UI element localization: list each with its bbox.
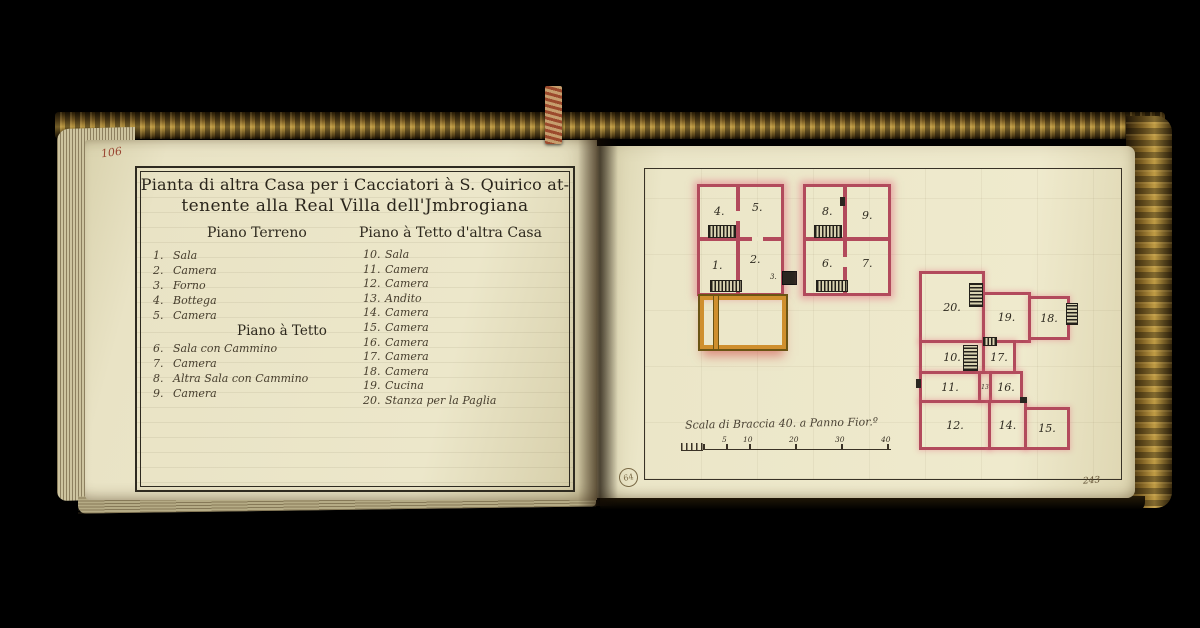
circled-stamp: 64: [617, 466, 639, 488]
chimney: [840, 197, 845, 206]
legend-item: 16.Camera: [363, 336, 496, 351]
scale-tick: [887, 444, 889, 449]
plan-piano-a-tetto-small: 8. 9. 6. 7.: [803, 184, 891, 296]
book-photo: 106 Pianta di altra Casa per i Cacciator…: [0, 0, 1200, 628]
legend-item: 19.Cucina: [363, 379, 496, 394]
legend-item: 14.Camera: [363, 306, 496, 321]
room-12: 12.: [919, 400, 991, 450]
doorway: [752, 237, 763, 241]
title-line-1: Pianta di altra Casa per i Cacciatori à …: [137, 175, 573, 194]
stairs: [710, 280, 742, 292]
room-number-7: 7.: [862, 257, 873, 270]
folio-number-right: 243: [1083, 475, 1101, 486]
legend-item: 4.Bottega: [153, 293, 217, 308]
scale-caption: Scala di Braccia 40. a Panno Fior.º: [685, 415, 878, 431]
room-16: 16.: [989, 371, 1023, 403]
scale-tick-label: 30: [835, 435, 845, 444]
plan-frame: 4. 5. 1. 2. 3. 8. 9. 6. 7.: [644, 168, 1122, 480]
doorway: [736, 211, 740, 221]
title-line-2: tenente alla Real Villa dell'Jmbrogiana: [137, 196, 573, 216]
legend-item: 2.Camera: [153, 263, 217, 278]
legend-item: 11.Camera: [363, 263, 496, 278]
room-15: 15.: [1024, 407, 1070, 450]
scale-bar-line: [703, 449, 891, 451]
scale-tick: [726, 444, 728, 449]
room-number-4: 4.: [714, 205, 725, 218]
room-14: 14.: [988, 400, 1027, 450]
stairs: [963, 345, 978, 371]
legend-item: 8.Altra Sala con Cammino: [153, 371, 308, 386]
plan-piano-terreno: 4. 5. 1. 2. 3.: [697, 184, 784, 296]
room-number-2: 2.: [750, 253, 761, 266]
room-number-1: 1.: [712, 259, 723, 272]
scale-tick: [841, 444, 843, 449]
room-number-9: 9.: [862, 209, 873, 222]
scale-tick-label: 40: [881, 435, 891, 444]
stairs: [708, 225, 736, 238]
scale-tick-label: 20: [789, 435, 799, 444]
bookmark-ribbon: [545, 86, 562, 144]
scale-tick-label: 10: [743, 435, 753, 444]
room-number-5: 5.: [752, 201, 763, 214]
scale-bar: 5 10 20 30 40: [681, 437, 896, 453]
room-number-8: 8.: [822, 205, 833, 218]
legend-item: 3.Forno: [153, 278, 217, 293]
stairs: [816, 280, 848, 292]
book-bottom-shadow: [600, 496, 1145, 512]
legend-item: 12.Camera: [363, 277, 496, 292]
room-20: 20.: [919, 271, 985, 343]
room-18: 18.: [1028, 296, 1070, 340]
legend-item: 9.Camera: [153, 386, 308, 401]
sub-header-piano-a-tetto: Piano à Tetto: [237, 323, 327, 339]
chimney: [1020, 397, 1027, 403]
stairs: [814, 225, 842, 238]
legend-frame: Pianta di altra Casa per i Cacciatori à …: [135, 166, 575, 492]
legend-item: 20.Stanza per la Paglia: [363, 394, 496, 409]
forno-oven-square: [782, 271, 797, 285]
legend-item: 5.Camera: [153, 308, 217, 323]
book-top-gilt-edge: [55, 112, 1165, 139]
room-11: 11.: [919, 371, 981, 403]
column-header-piano-a-tetto: Piano à Tetto d'altra Casa: [359, 225, 542, 241]
legend-item: 17.Camera: [363, 350, 496, 365]
doorway: [843, 257, 847, 267]
legend-item: 6.Sala con Cammino: [153, 341, 308, 356]
scale-tick: [703, 444, 705, 449]
legend-list-attic: 6.Sala con Cammino 7.Camera 8.Altra Sala…: [153, 341, 308, 401]
room-number-3: 3.: [770, 273, 777, 281]
left-page: 106 Pianta di altra Casa per i Cacciator…: [85, 140, 597, 500]
column-header-piano-terreno: Piano Terreno: [207, 225, 307, 241]
stairs: [969, 283, 983, 307]
gutter-shadow: [578, 138, 618, 506]
room-number-6: 6.: [822, 257, 833, 270]
legend-item: 13.Andito: [363, 292, 496, 307]
plan-piano-a-tetto-large: 20. 19. 18. 10. 17. 11. 13 16. 12. 14. 1…: [919, 271, 1070, 450]
courtyard-divider-wall: [713, 296, 719, 349]
scale-tick: [795, 444, 797, 449]
right-page: 4. 5. 1. 2. 3. 8. 9. 6. 7.: [597, 146, 1135, 498]
stairs: [983, 337, 997, 346]
scale-bar-subdivisions: [681, 443, 703, 451]
legend-list-ground: 1.Sala 2.Camera 3.Forno 4.Bottega 5.Came…: [153, 248, 217, 323]
legend-item: 10.Sala: [363, 248, 496, 263]
legend-frame-inner-rule: [140, 171, 570, 487]
scale-tick-label: 5: [722, 435, 727, 444]
legend-item: 1.Sala: [153, 248, 217, 263]
chimney: [916, 379, 921, 388]
legend-item: 15.Camera: [363, 321, 496, 336]
stairs: [1066, 303, 1078, 325]
scale-tick: [749, 444, 751, 449]
legend-list-tetto-altra-casa: 10.Sala 11.Camera 12.Camera 13.Andito 14…: [363, 248, 496, 409]
legend-item: 7.Camera: [153, 356, 308, 371]
courtyard-plan: [698, 294, 788, 351]
room-19: 19.: [982, 292, 1031, 343]
folio-number-left: 106: [100, 145, 123, 161]
legend-item: 18.Camera: [363, 365, 496, 380]
